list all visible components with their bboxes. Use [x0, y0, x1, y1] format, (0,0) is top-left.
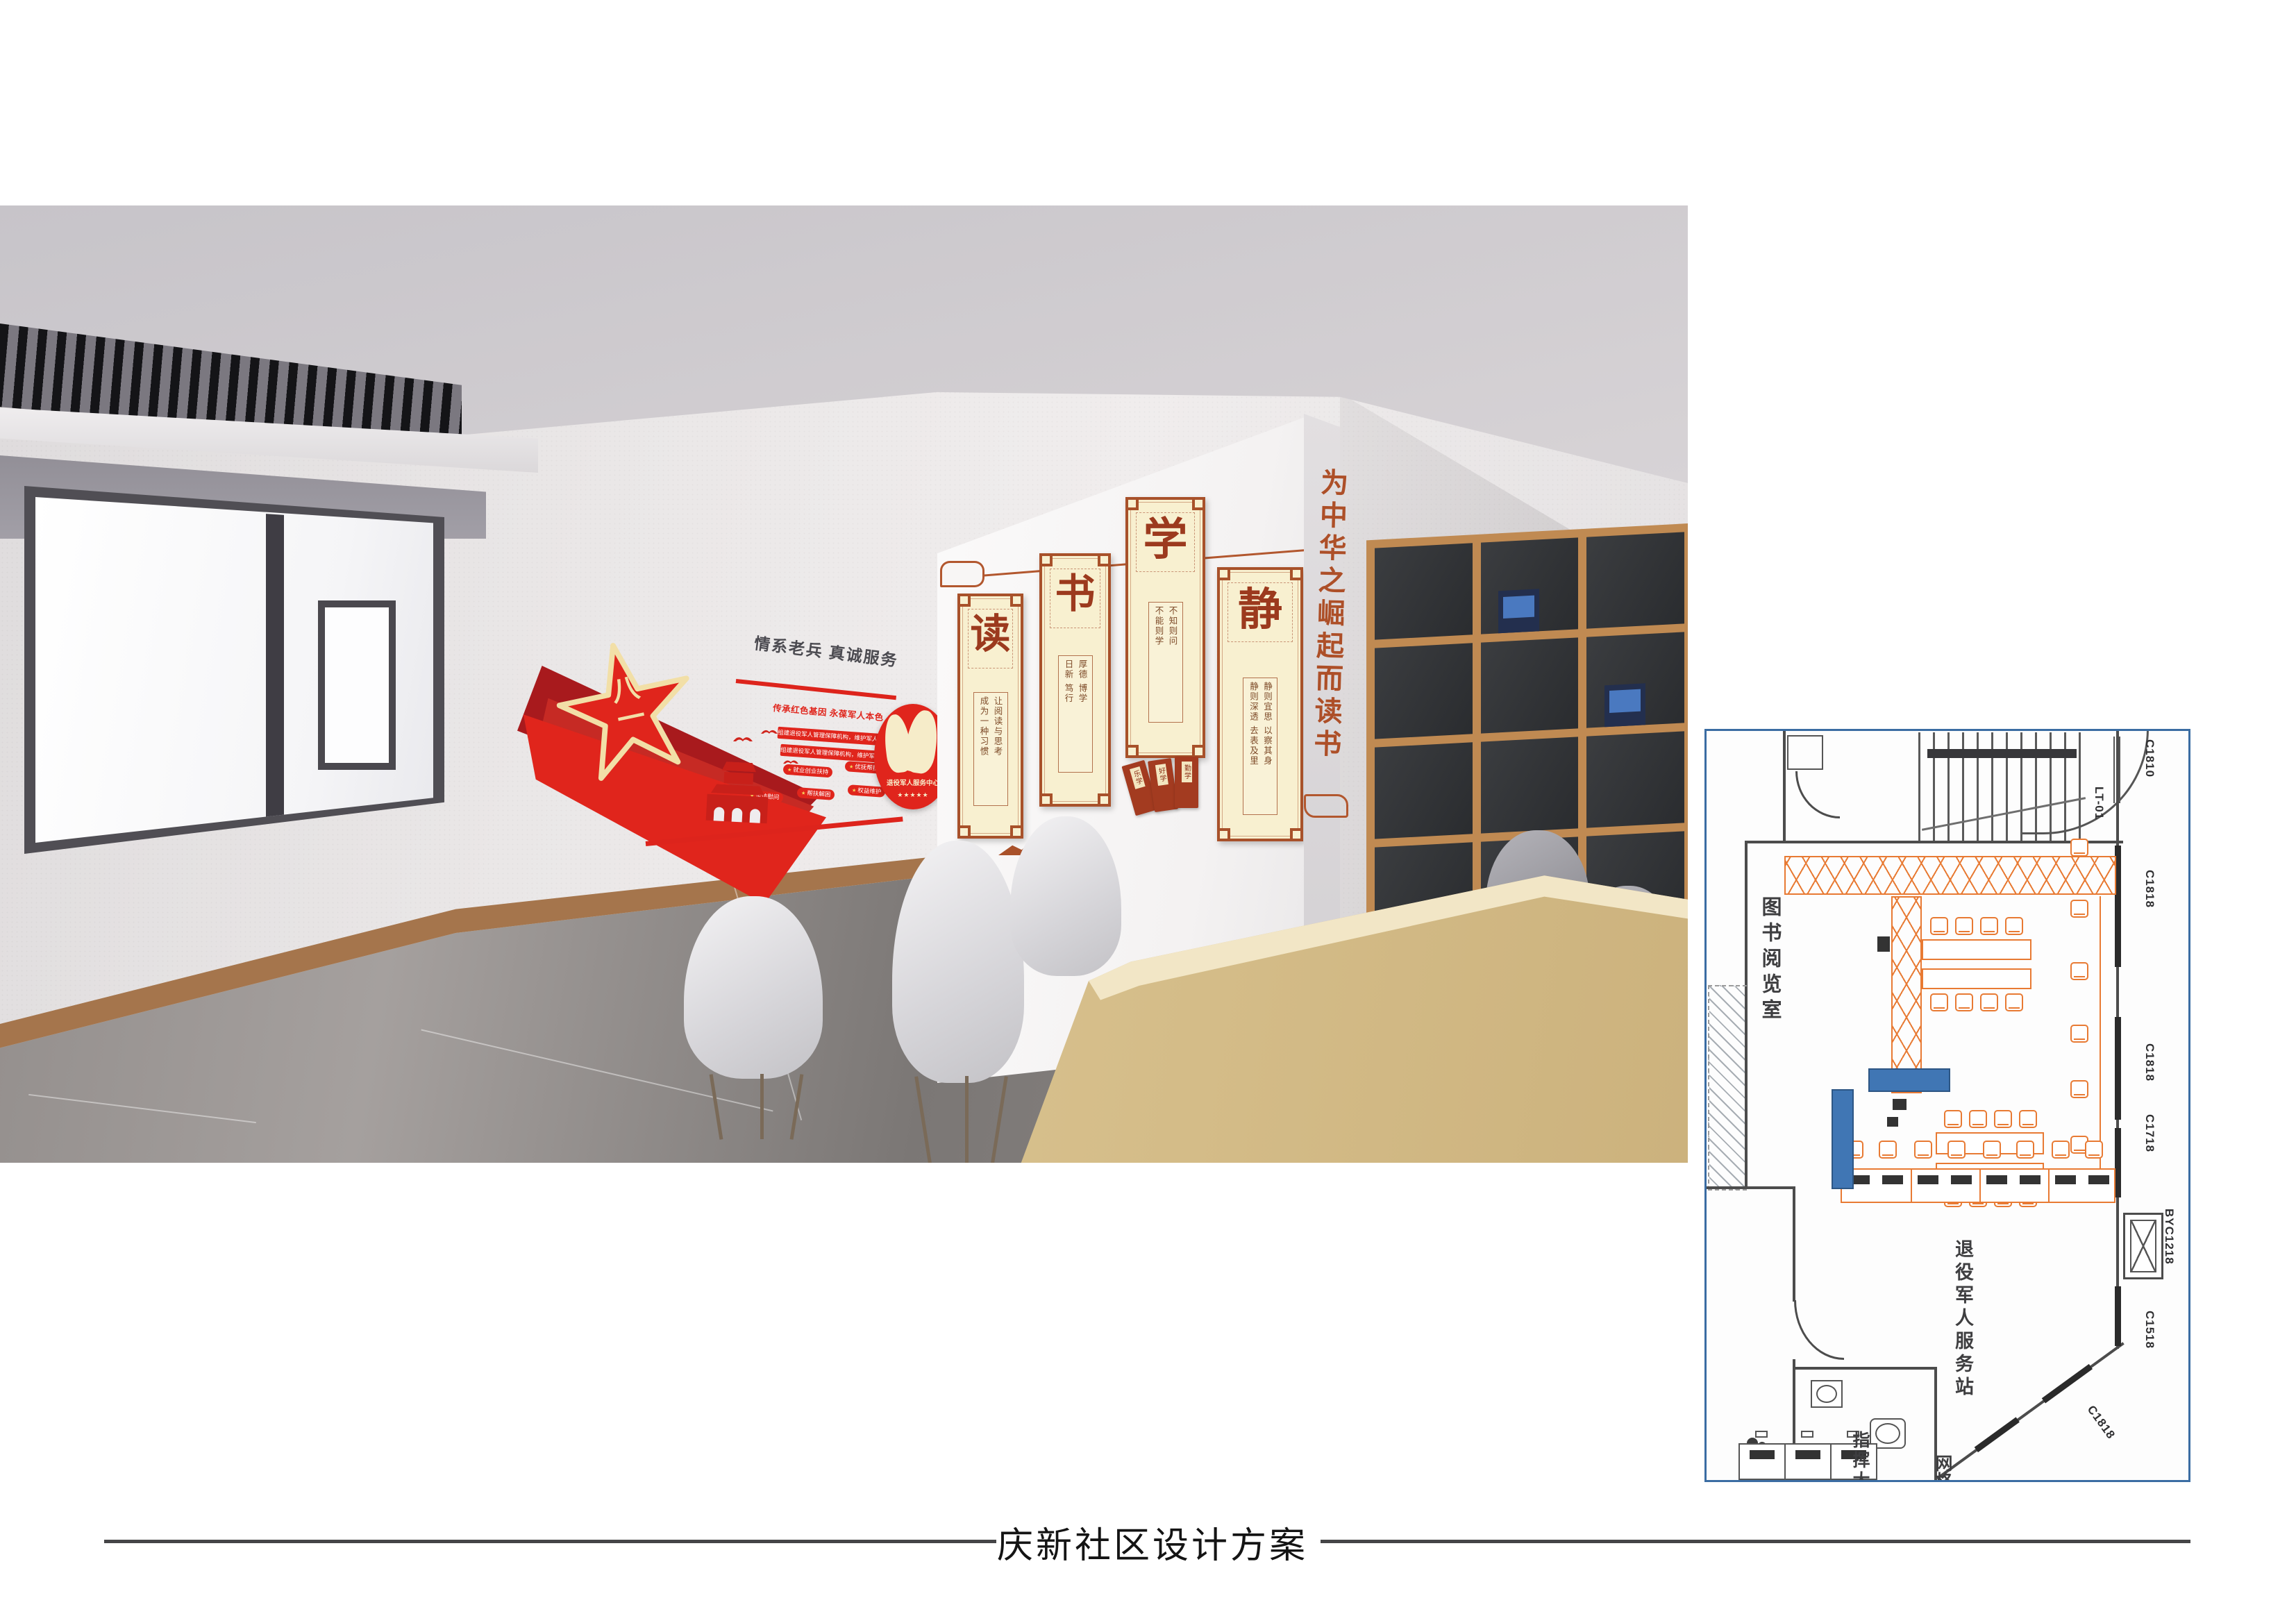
scroll-verse: 静则宜思 以察其身 静则深透 去表及里	[1243, 678, 1277, 815]
gate-base	[706, 794, 769, 824]
interior-rendering: 八一 情系老兵 真诚服务 传承红色基因 永葆军人本色 组建退役军人管理保障机构，…	[0, 205, 1688, 1163]
window-bar	[2115, 1128, 2121, 1197]
white-chair	[1010, 816, 1121, 976]
window	[24, 486, 444, 854]
scroll-learn: 学 不知则问 不能则学	[1125, 497, 1205, 758]
plan-chair	[2052, 1141, 2070, 1159]
computer-desk-row	[1841, 1168, 2115, 1203]
scroll-verse: 不知则问 不能则学	[1148, 602, 1183, 723]
window-bar	[2115, 1017, 2121, 1120]
monitor-icon	[2020, 1175, 2041, 1184]
monitor-icon	[1986, 1175, 2007, 1184]
window-double-line	[2113, 737, 2120, 803]
plan-chair	[1947, 1141, 1966, 1159]
scroll-verse: 让阅读与思考 成为一种习惯	[973, 692, 1008, 806]
plan-chair	[2070, 839, 2088, 857]
window-code: C1818	[2143, 1043, 2156, 1082]
tiananmen-silhouette	[705, 761, 770, 846]
gate-arch	[732, 808, 743, 823]
scroll-quiet: 静 静则宜思 以察其身 静则深透 去表及里	[1217, 567, 1303, 841]
monitor-icon	[1918, 1175, 1938, 1184]
chair-tick	[1801, 1431, 1813, 1438]
culture-wall-subheadline: 传承红色基因 永葆军人本色	[772, 700, 884, 723]
policy-bar: 组建退役军人管理保障机构，维护军人军属合法权益。	[778, 727, 884, 746]
monitor-icon	[1750, 1450, 1775, 1459]
printer-icon	[1877, 936, 1890, 952]
star-icon: ★	[801, 791, 806, 796]
blue-book	[1498, 589, 1539, 633]
gate-arch	[713, 807, 724, 821]
closet	[1787, 735, 1823, 770]
shelf-cell	[1481, 737, 1579, 834]
window-segment	[1975, 1417, 2020, 1452]
monitor-icon	[2055, 1175, 2076, 1184]
wall	[1745, 841, 1748, 986]
window-code: C1810	[2143, 739, 2156, 777]
reading-slogan: 为中华之崛起而读书	[1304, 467, 1352, 773]
dove-icon	[733, 734, 753, 743]
white-chair	[892, 841, 1024, 1163]
monitor-icon	[2088, 1175, 2109, 1184]
orange-partition-line	[2100, 896, 2101, 1168]
window-code: C1518	[2143, 1311, 2156, 1349]
plan-chair	[1980, 917, 1998, 935]
august-first-star-emblem: 八一	[546, 629, 707, 789]
bookshelf-row	[1784, 856, 2116, 895]
highlight-cabinet	[1832, 1089, 1854, 1189]
service-badge: ★就业创业扶持	[783, 764, 833, 778]
room-label-veterans: 退役军人服务站	[1950, 1239, 1977, 1399]
star-icon: ★	[787, 768, 792, 773]
room-label-reading: 图书阅览室	[1755, 896, 1784, 1025]
plan-chair	[2085, 1141, 2103, 1159]
plan-chair	[1994, 1110, 2012, 1128]
dove-icon	[761, 728, 778, 735]
plan-chair	[2005, 993, 2023, 1011]
plan-chair	[1930, 993, 1948, 1011]
highlight-counter	[1868, 1068, 1950, 1092]
door-arc	[1795, 771, 1840, 818]
culture-wall-headline: 情系老兵 真诚服务	[753, 630, 900, 671]
connector-line-top	[736, 679, 896, 700]
chair-tick	[1755, 1431, 1768, 1438]
wall	[1707, 1186, 1795, 1189]
plan-chair	[1879, 1141, 1897, 1159]
shelf-cell	[1375, 743, 1473, 839]
plan-chair	[1980, 993, 1998, 1011]
shelf-cell	[1586, 632, 1684, 728]
plan-chair	[1914, 1141, 1932, 1159]
far-building-window	[318, 600, 396, 770]
stair-code: LT-01	[2092, 787, 2106, 820]
scroll-character: 书	[1042, 574, 1108, 614]
scroll-verse: 厚德 博学 日新 笃行	[1058, 655, 1093, 773]
cloud-scroll-ornament	[1304, 794, 1348, 818]
plan-chair	[1955, 917, 1973, 935]
monitor-icon	[1795, 1450, 1820, 1459]
scroll-character: 读	[960, 614, 1021, 655]
shelf-cell	[1481, 637, 1579, 734]
plan-chair	[1955, 993, 1973, 1011]
window-code: C1718	[2143, 1114, 2156, 1152]
wall	[1745, 986, 1748, 1189]
wall	[1793, 1186, 1795, 1302]
plan-chair	[1944, 1110, 1962, 1128]
reading-table-plan	[1922, 968, 2031, 989]
blue-book	[1604, 683, 1645, 728]
wall	[1745, 841, 2123, 843]
dove-icon	[783, 758, 798, 765]
star-icon: ★	[852, 789, 857, 793]
gate-arch	[750, 809, 761, 823]
window-code: C1818	[2084, 1403, 2118, 1442]
footer-rule-left	[104, 1540, 996, 1543]
star-icon: ★	[849, 765, 854, 770]
plan-chair	[2070, 900, 2088, 918]
white-chair	[684, 896, 823, 1139]
plan-chair	[2070, 962, 2088, 980]
plan-chair	[2019, 1110, 2037, 1128]
shelf-cell	[1375, 643, 1473, 739]
room-label-command: 指挥大厅	[1847, 1431, 1872, 1482]
window-bar	[2115, 1286, 2121, 1346]
floor-plan: 图书阅览室 退役军人服务站 指挥大厅 网格 C1810 LT-01 C1818 …	[1704, 729, 2190, 1482]
window-segment	[2042, 1364, 2093, 1404]
window-code: C1818	[2143, 870, 2156, 908]
wall	[1793, 1367, 1937, 1370]
gate-roof	[722, 762, 757, 773]
reading-table-plan	[1922, 939, 2031, 960]
room-label-grid: 网格	[1930, 1454, 1955, 1482]
plan-chair	[1930, 917, 1948, 935]
curved-wall	[2022, 729, 2149, 834]
scroll-read: 读 让阅读与思考 成为一种习惯	[957, 594, 1023, 839]
printer-icon	[1893, 1099, 1907, 1110]
plan-chair	[2005, 917, 2023, 935]
scroll-character: 静	[1220, 588, 1300, 632]
bookshelf-column	[1891, 896, 1922, 1093]
plan-chair	[1983, 1141, 2001, 1159]
footer-rule-right	[1321, 1540, 2190, 1543]
plan-chair	[2070, 1025, 2088, 1043]
shelf-cell	[1375, 543, 1473, 639]
plan-chair	[1969, 1110, 1987, 1128]
window-mullion	[266, 514, 284, 823]
entrance-door-arc	[1794, 1300, 1844, 1360]
booklet: 勤学	[1175, 757, 1198, 808]
plan-chair	[2070, 1080, 2088, 1098]
design-proposal-page: 八一 情系老兵 真诚服务 传承红色基因 永葆军人本色 组建退役军人管理保障机构，…	[0, 0, 2296, 1623]
bay-x-symbol	[2130, 1220, 2156, 1272]
wall	[1783, 731, 1786, 842]
scroll-book: 书 厚德 博学 日新 笃行	[1039, 553, 1111, 807]
window-glass	[35, 497, 433, 843]
monitor-icon	[1882, 1175, 1903, 1184]
plan-chair	[2016, 1141, 2034, 1159]
monitor-icon	[1951, 1175, 1972, 1184]
bay-window-unit	[2123, 1213, 2163, 1279]
shelf-cell	[1481, 537, 1579, 634]
scroll-character: 学	[1128, 518, 1203, 562]
toilet-fixture	[1811, 1380, 1843, 1408]
shelf-cell	[1586, 732, 1684, 828]
printer-icon	[1887, 1117, 1898, 1127]
gate-roof-lower	[711, 784, 765, 796]
page-title: 庆新社区设计方案	[989, 1516, 1316, 1568]
gate-pavilion	[723, 772, 753, 784]
window-code: BYC1218	[2162, 1209, 2176, 1265]
shelf-cell	[1586, 532, 1684, 628]
hatched-area	[1708, 985, 1747, 1191]
cloud-scroll-ornament	[940, 561, 984, 587]
